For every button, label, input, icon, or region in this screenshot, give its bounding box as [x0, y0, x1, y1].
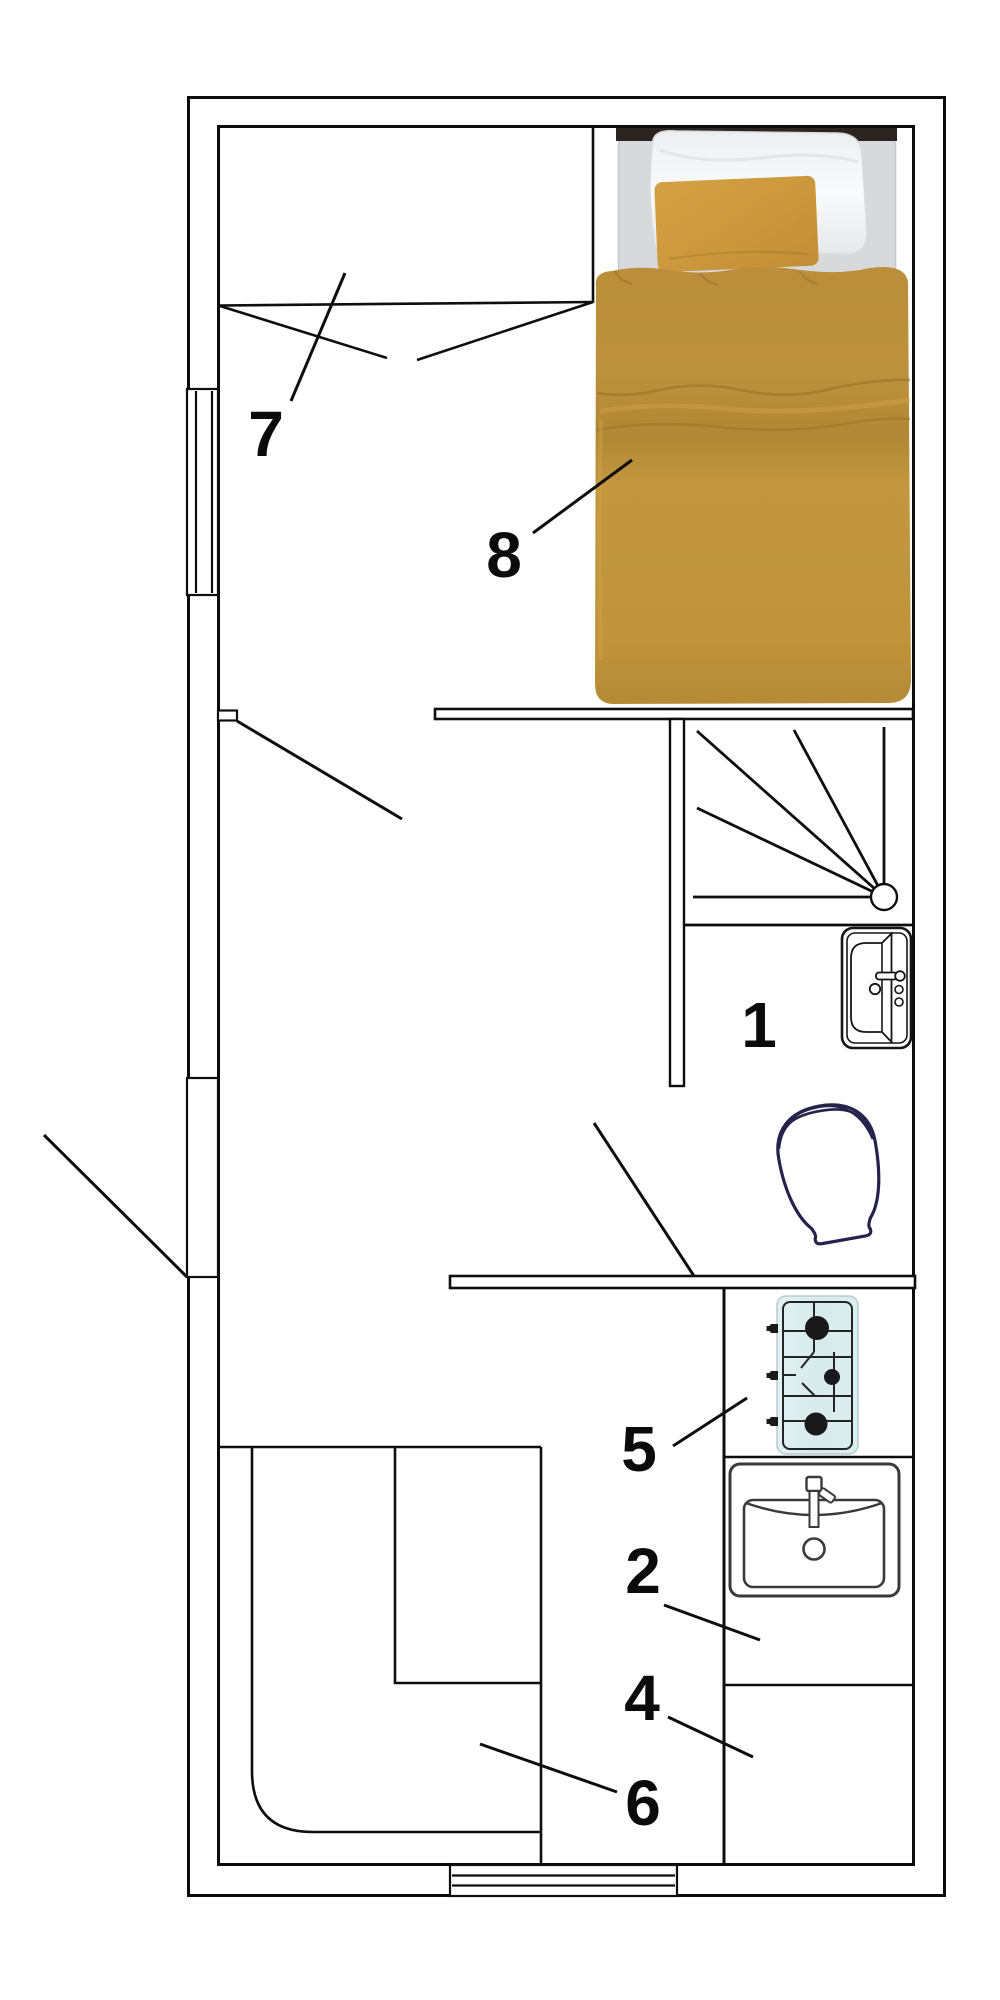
svg-text:1: 1	[741, 989, 777, 1061]
svg-text:4: 4	[624, 1662, 660, 1734]
svg-text:2: 2	[625, 1535, 661, 1607]
svg-text:5: 5	[621, 1413, 657, 1485]
svg-text:7: 7	[248, 398, 284, 470]
svg-text:8: 8	[486, 519, 522, 591]
svg-text:6: 6	[625, 1767, 661, 1839]
